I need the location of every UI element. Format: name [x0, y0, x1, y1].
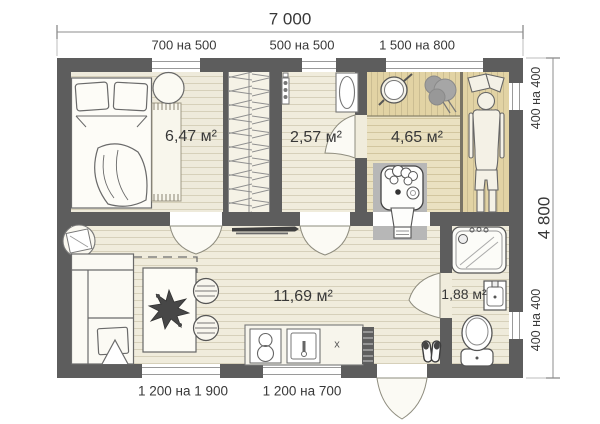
- window-top-1: [152, 58, 200, 72]
- bathroom-sink: [484, 281, 506, 310]
- counter-x-mark: x: [334, 340, 340, 351]
- dim-overall-width: 7 000: [269, 11, 312, 28]
- floor-plan: 7 000 700 на 500 500 на 500 1 500 на 800…: [0, 0, 600, 424]
- window-size-bottom-2: 1 200 на 700: [263, 384, 342, 398]
- kitchen-counter: [245, 325, 363, 365]
- window-right-top: [509, 83, 523, 110]
- chair-2: [194, 316, 219, 341]
- chair-1: [194, 279, 219, 304]
- room-area-washroom: 2,57 м²: [290, 130, 342, 146]
- round-table: [153, 73, 184, 104]
- window-bottom-2: [263, 364, 341, 378]
- room-area-bedroom: 6,47 м²: [165, 129, 217, 145]
- water-heater: [336, 73, 358, 112]
- window-size-bottom-1: 1 200 на 1 900: [138, 384, 228, 398]
- window-size-right-bottom: 400 на 400: [530, 289, 543, 352]
- room-area-bathroom: 1,88 м²: [441, 287, 486, 301]
- window-top-3: [386, 58, 483, 72]
- toilet: [461, 316, 493, 367]
- sofa: [72, 254, 134, 364]
- window-size-right-top: 400 на 400: [530, 67, 543, 130]
- dim-overall-height: 4 800: [536, 197, 553, 240]
- room-area-sauna: 4,65 м²: [391, 130, 443, 146]
- window-size-top-1: 700 на 500: [151, 39, 216, 52]
- window-right-bottom: [509, 312, 523, 339]
- shower: [452, 227, 506, 273]
- wall-hooks: [282, 73, 289, 104]
- ladder: [362, 327, 374, 364]
- entry-door: [377, 378, 427, 419]
- window-bottom-1: [142, 364, 220, 378]
- window-top-2: [302, 58, 336, 72]
- window-size-top-3: 1 500 на 800: [379, 39, 455, 52]
- window-size-top-2: 500 на 500: [269, 39, 334, 52]
- room-area-living: 11,69 м²: [273, 289, 333, 305]
- kitchen-sink: [287, 329, 320, 363]
- plan-drawing: [0, 0, 600, 424]
- entry-opening: [377, 364, 427, 378]
- rug: [152, 103, 181, 201]
- dining-table: [143, 268, 196, 352]
- double-bed: [72, 78, 152, 208]
- corner-table: [63, 225, 95, 257]
- cooktop: [250, 329, 281, 363]
